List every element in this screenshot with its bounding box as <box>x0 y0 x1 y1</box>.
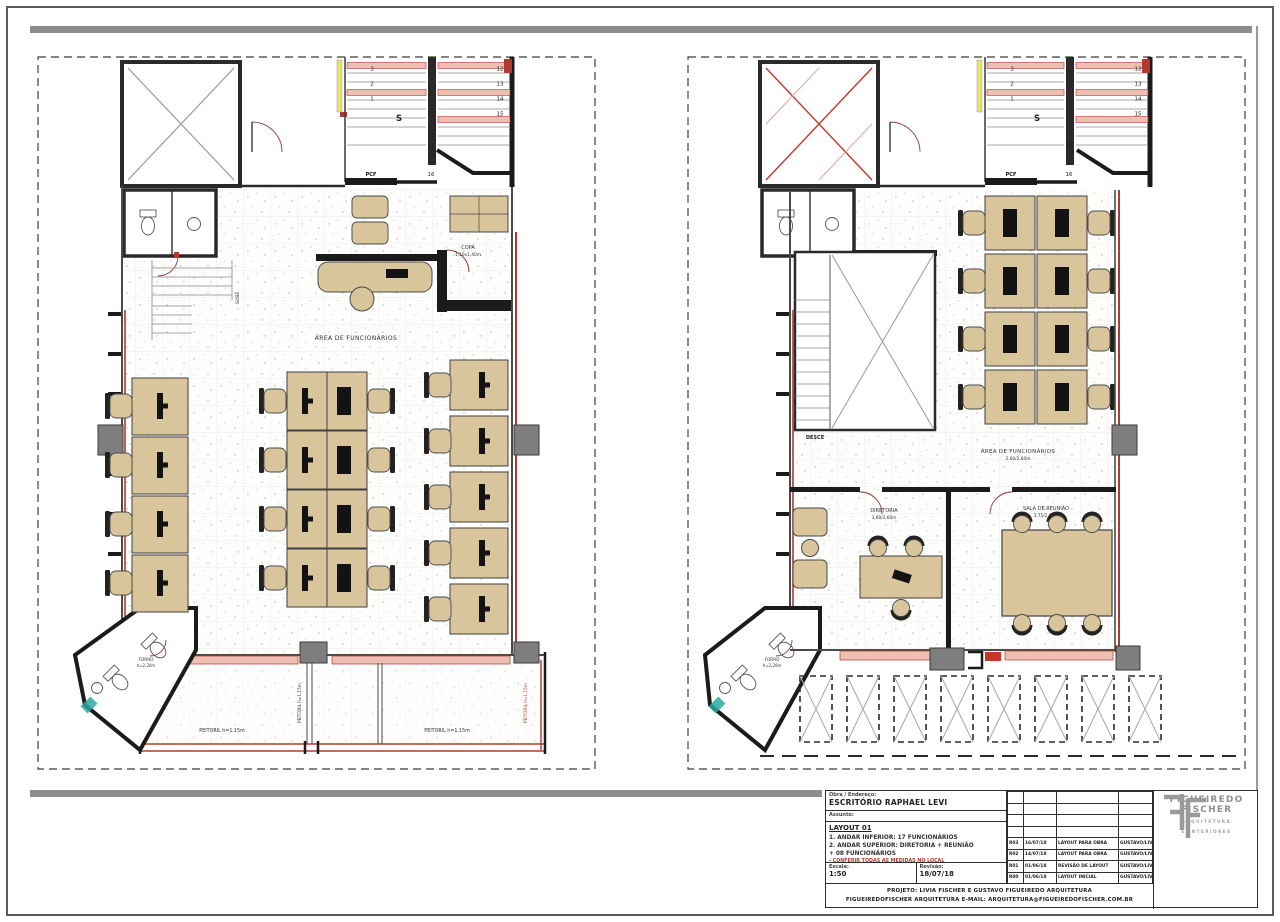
revision-date: 14/07/18 <box>1024 849 1057 861</box>
left-stair-red-marker <box>504 59 512 73</box>
desce-label: DESCE <box>806 435 825 441</box>
revisao-value: 18/07/18 <box>920 870 1004 878</box>
stair-number: 2 <box>370 82 374 88</box>
copa-dim: 1,10x1,40m <box>455 252 481 258</box>
right-vestibule <box>878 60 985 186</box>
diretoria-dim: 3,60/2,60m <box>872 515 897 521</box>
layout-line-2: 2. ANDAR SUPERIOR: DIRETORIA + REUNIÃO <box>829 842 1003 850</box>
forro-dim: h=2,20m <box>137 663 156 668</box>
peitoril-label-vertical-red: PEITORIL h=1,15m <box>523 683 528 723</box>
stair-d-label: D <box>427 142 434 152</box>
column <box>300 642 327 663</box>
title-block: Obra / Endereço: ESCRITÓRIO RAPHAEL LEVI… <box>825 790 1258 908</box>
stair-s-label: S <box>396 114 402 124</box>
peitoril-label: PEITORIL h=1,15m <box>424 728 470 734</box>
stair-number: 3 <box>1010 67 1014 73</box>
obra-value: ESCRITÓRIO RAPHAEL LEVI <box>829 798 1003 807</box>
diretoria-label: DIRETORIA <box>870 508 898 514</box>
stair-number: 14 <box>1135 97 1142 103</box>
revision-by: GUSTAVO/LIVIA <box>1119 838 1154 850</box>
forro-label: FORRO <box>139 657 155 662</box>
column <box>1116 646 1140 670</box>
revision-date: 16/07/18 <box>1024 838 1057 850</box>
revision-row-empty <box>1008 815 1154 827</box>
pcf-label: PCF <box>366 172 377 178</box>
layout-line-3: + 08 FUNCIONÁRIOS <box>829 850 1003 858</box>
column <box>514 642 539 663</box>
escala-value: 1:50 <box>829 870 913 878</box>
revision-row-empty <box>1008 792 1154 804</box>
stair-number: 13 <box>1135 82 1142 88</box>
right-wc-diagonal: FORRO h=2,20m <box>705 608 820 750</box>
stair-number: 12 <box>497 67 504 73</box>
revision-date: 01/06/18 <box>1024 872 1057 884</box>
terrace-cross-hatch <box>800 676 1161 742</box>
revision-row: R01 01/06/18 REVISÃO DE LAYOUT GUSTAVO/L… <box>1008 861 1154 873</box>
stair-number: 15 <box>497 112 504 118</box>
sobe-label: SOBE <box>235 292 241 304</box>
revision-by: GUSTAVO/LIVIA <box>1119 872 1154 884</box>
pcf-label: PCF <box>1006 172 1017 178</box>
stair-number: 1 <box>370 97 374 103</box>
stair-number: 15 <box>1135 112 1142 118</box>
revision-id: R03 <box>1008 838 1024 850</box>
revision-date: 01/06/18 <box>1024 861 1057 873</box>
stair-s-label: S <box>1034 114 1040 124</box>
column <box>930 648 964 670</box>
right-area-dim: 2,60/2,60m <box>1006 456 1031 462</box>
revision-desc: LAYOUT PARA OBRA <box>1057 838 1119 850</box>
right-area-label: ÁREA DE FUNCIONÁRIOS <box>981 448 1055 455</box>
stair-number: 16 <box>1066 172 1073 178</box>
revision-id: R01 <box>1008 861 1024 873</box>
layout-line-1: 1. ANDAR INFERIOR: 17 FUNCIONÁRIOS <box>829 834 1003 842</box>
drawing-sheet: 3 2 1 12 13 14 15 S D 16 PCF COPA 1,10x1… <box>0 0 1280 922</box>
title-block-info: Obra / Endereço: ESCRITÓRIO RAPHAEL LEVI… <box>826 791 1007 883</box>
revision-table: R03 16/07/18 LAYOUT PARA OBRA GUSTAVO/LI… <box>1007 791 1153 883</box>
stair-number: 3 <box>370 67 374 73</box>
revision-row: R02 14/07/18 LAYOUT PARA OBRA GUSTAVO/LI… <box>1008 849 1154 861</box>
column <box>1112 425 1137 455</box>
peitoril-label-vertical: PEITORIL h=1,15m <box>297 683 302 723</box>
revision-by: GUSTAVO/LIVIA <box>1119 861 1154 873</box>
stair-number: 14 <box>497 97 504 103</box>
footer-line-1: PROJETO: LIVIA FISCHER E GUSTAVO FIGUEIR… <box>828 887 1151 896</box>
revision-id: R02 <box>1008 849 1024 861</box>
left-area-label: ÁREA DE FUNCIONÁRIOS <box>315 335 397 342</box>
revision-row-empty <box>1008 826 1154 838</box>
ff-monogram-icon <box>1154 791 1212 839</box>
assunto-label: Assunto: <box>829 812 1003 818</box>
stair-d-label: D <box>1065 142 1072 152</box>
revision-row: R00 01/06/18 LAYOUT INICIAL GUSTAVO/LIVI… <box>1008 872 1154 884</box>
stair-number: 13 <box>497 82 504 88</box>
forro-dim: h=2,20m <box>763 663 782 668</box>
revision-desc: LAYOUT INICIAL <box>1057 872 1119 884</box>
revision-desc: LAYOUT PARA OBRA <box>1057 849 1119 861</box>
copa-label: COPA <box>461 245 475 251</box>
floor-plans-canvas: 3 2 1 12 13 14 15 S D 16 PCF COPA 1,10x1… <box>0 0 1280 922</box>
layout-title: LAYOUT 01 <box>829 824 1003 832</box>
stair-number: 16 <box>428 172 435 178</box>
left-stair: 3 2 1 12 13 14 15 S D 16 PCF <box>345 57 512 187</box>
revision-desc: REVISÃO DE LAYOUT <box>1057 861 1119 873</box>
forro-label: FORRO <box>765 657 781 662</box>
right-terrace <box>760 646 1240 756</box>
reuniao-label: SALA DE REUNIÃO <box>1023 505 1069 512</box>
right-plan: 3 2 1 12 13 14 15 S D 16 PCF <box>688 57 1245 769</box>
title-block-footer: PROJETO: LIVIA FISCHER E GUSTAVO FIGUEIR… <box>826 883 1153 909</box>
left-plan: 3 2 1 12 13 14 15 S D 16 PCF COPA 1,10x1… <box>38 57 595 769</box>
stair-number: 1 <box>1010 97 1014 103</box>
firm-logo: FIGUEIREDO FISCHER ARQUITETURA E INTERIO… <box>1153 791 1259 909</box>
right-elevator-shaft <box>760 62 878 186</box>
revision-row-empty <box>1008 803 1154 815</box>
column <box>98 425 123 455</box>
terrace-modules <box>800 676 1161 742</box>
footer-line-2: FIGUEIREDOFISCHER ARQUITETURA E-MAIL: AR… <box>828 896 1151 905</box>
stair-number: 2 <box>1010 82 1014 88</box>
right-reuniao: SALA DE REUNIÃO 3,75/2,60m <box>1002 505 1112 636</box>
left-vestibule <box>240 60 347 186</box>
right-stair-void: DESCE <box>795 250 937 441</box>
revision-row: R03 16/07/18 LAYOUT PARA OBRA GUSTAVO/LI… <box>1008 838 1154 850</box>
peitoril-label: PEITORIL h=1,15m <box>199 728 245 734</box>
left-yellow-riser <box>337 60 342 112</box>
right-stair: 3 2 1 12 13 14 15 S D 16 PCF <box>985 57 1150 187</box>
column <box>514 425 539 455</box>
revision-id: R00 <box>1008 872 1024 884</box>
stair-number: 12 <box>1135 67 1142 73</box>
revision-by: GUSTAVO/LIVIA <box>1119 849 1154 861</box>
left-elevator-shaft <box>122 62 240 186</box>
